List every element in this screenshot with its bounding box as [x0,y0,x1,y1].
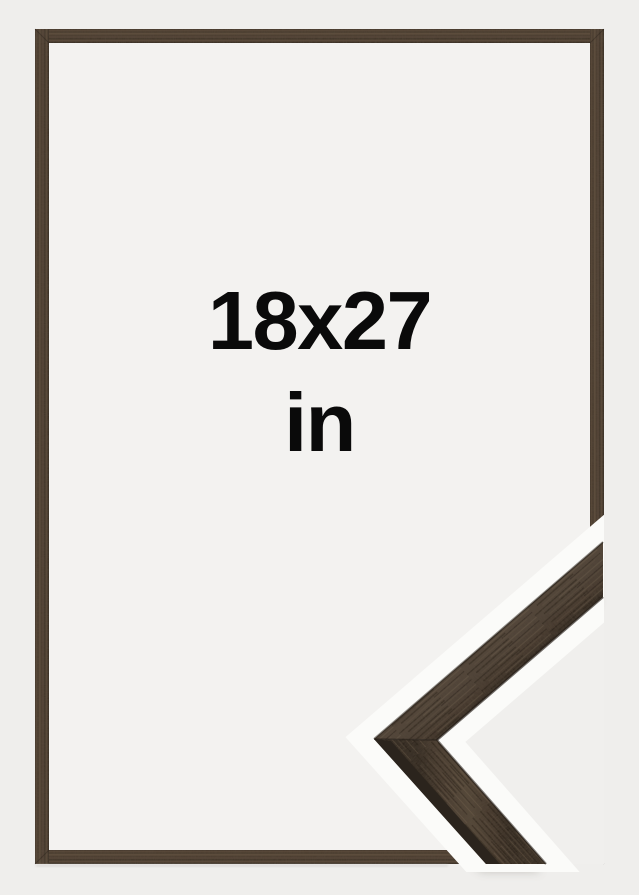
frame-photo [0,0,639,895]
product-image: 18x27 in [0,0,639,895]
